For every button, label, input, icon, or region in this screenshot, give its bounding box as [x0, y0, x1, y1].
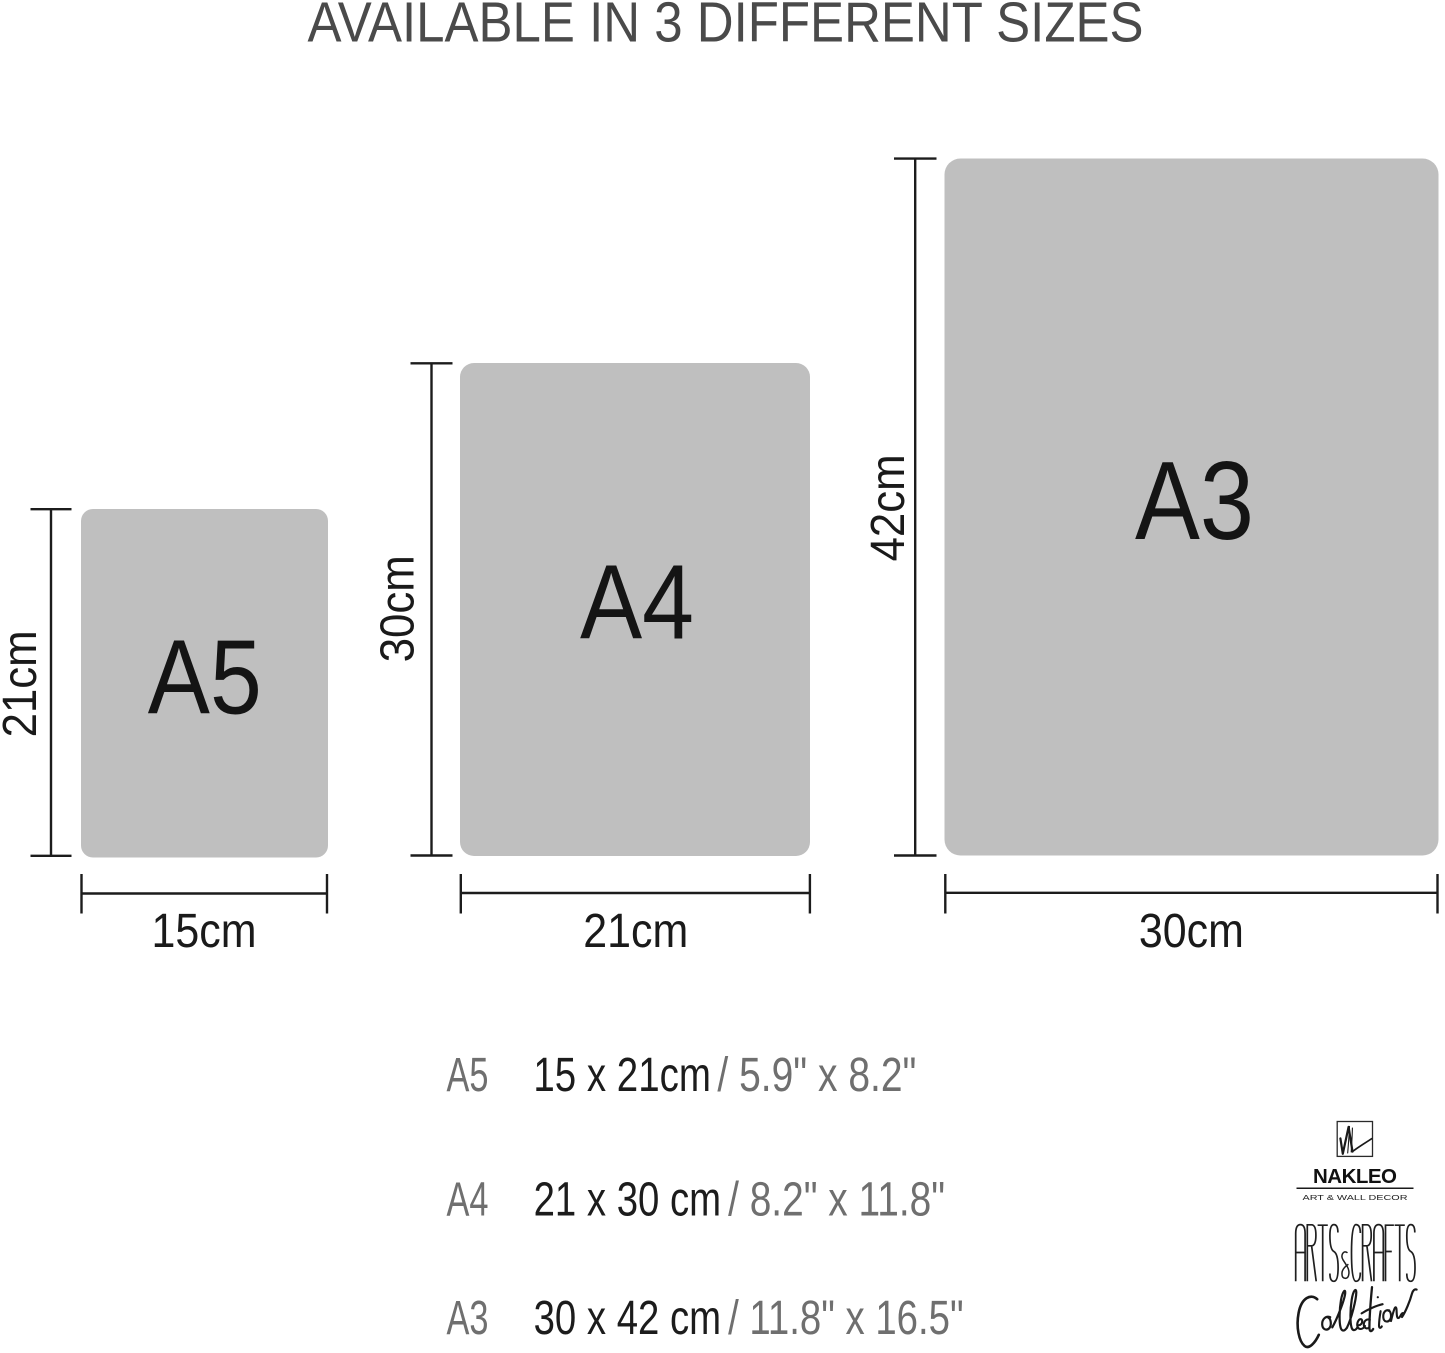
- svg-text:30 x 42 cm: 30 x 42 cm: [534, 1291, 722, 1345]
- svg-text:15 x 21cm: 15 x 21cm: [533, 1048, 711, 1102]
- svg-text:42cm: 42cm: [861, 454, 915, 561]
- svg-text:21 x 30 cm: 21 x 30 cm: [534, 1173, 722, 1227]
- svg-text:NAKLEO: NAKLEO: [1313, 1165, 1397, 1188]
- svg-text:A5: A5: [447, 1048, 489, 1102]
- svg-text:ART & WALL DECOR: ART & WALL DECOR: [1303, 1195, 1408, 1202]
- svg-text:A3: A3: [1135, 439, 1254, 563]
- svg-text:/ 5.9" x 8.2": / 5.9" x 8.2": [717, 1048, 916, 1102]
- svg-text:/ 11.8" x 16.5": / 11.8" x 16.5": [728, 1291, 964, 1345]
- svg-text:15cm: 15cm: [152, 904, 257, 958]
- svg-text:/ 8.2" x 11.8": / 8.2" x 11.8": [728, 1173, 945, 1227]
- svg-text:AVAILABLE IN 3 DIFFERENT SIZES: AVAILABLE IN 3 DIFFERENT SIZES: [308, 0, 1144, 54]
- svg-text:21cm: 21cm: [583, 904, 688, 958]
- svg-text:A4: A4: [447, 1173, 489, 1227]
- svg-text:30cm: 30cm: [1139, 904, 1244, 958]
- svg-text:A5: A5: [148, 619, 262, 737]
- svg-text:21cm: 21cm: [0, 630, 47, 737]
- svg-text:A4: A4: [580, 544, 694, 662]
- svg-text:A3: A3: [447, 1291, 489, 1345]
- svg-text:30cm: 30cm: [371, 555, 425, 662]
